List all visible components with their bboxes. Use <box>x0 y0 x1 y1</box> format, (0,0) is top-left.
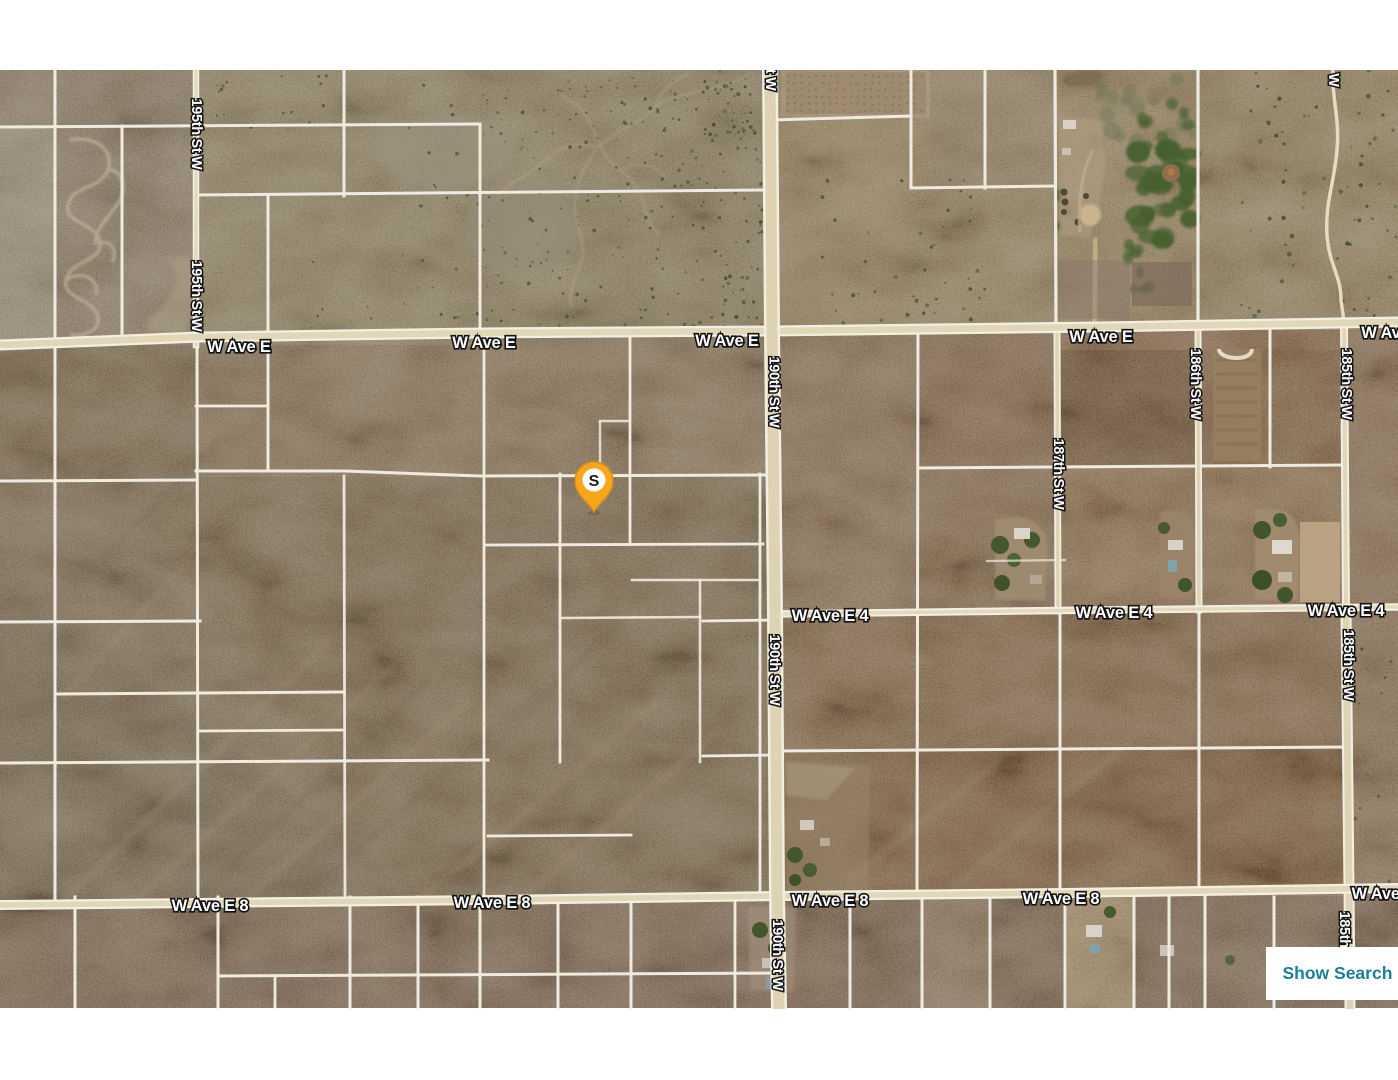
svg-text:W Ave E 4: W Ave E 4 <box>1308 602 1386 620</box>
svg-text:W Ave E: W Ave E <box>1069 328 1133 346</box>
svg-text:W Ave E 8: W Ave E 8 <box>1023 890 1100 908</box>
svg-text:S: S <box>589 473 600 490</box>
svg-text:W: W <box>1325 73 1341 87</box>
svg-text:187th St W: 187th St W <box>1050 438 1066 510</box>
svg-text:190th St W: 190th St W <box>769 919 785 991</box>
svg-text:W Ave E: W Ave E <box>452 334 516 352</box>
svg-text:W Ave E 4: W Ave E 4 <box>792 607 870 625</box>
svg-text:195th St W: 195th St W <box>188 98 204 170</box>
svg-text:185th St W: 185th St W <box>1338 348 1354 420</box>
svg-text:W Ave E 4: W Ave E 4 <box>1076 604 1154 622</box>
svg-text:W Ave E 8: W Ave E 8 <box>454 894 531 912</box>
svg-text:W Ave E: W Ave E <box>207 338 271 356</box>
svg-text:185th St W: 185th St W <box>1340 629 1356 701</box>
svg-text:190th St W: 190th St W <box>766 356 782 428</box>
svg-text:195th St W: 195th St W <box>188 260 204 332</box>
svg-text:190th St W: 190th St W <box>762 70 778 91</box>
svg-text:W Ave E: W Ave E <box>1361 324 1398 342</box>
svg-text:186th St W: 186th St W <box>1187 348 1203 420</box>
svg-text:W Ave E 8: W Ave E 8 <box>172 897 249 915</box>
svg-text:W Ave E 8: W Ave E 8 <box>1352 885 1398 903</box>
svg-text:190th St W: 190th St W <box>766 634 782 706</box>
svg-text:W Ave E 8: W Ave E 8 <box>792 892 869 910</box>
svg-text:W Ave E: W Ave E <box>695 332 759 350</box>
